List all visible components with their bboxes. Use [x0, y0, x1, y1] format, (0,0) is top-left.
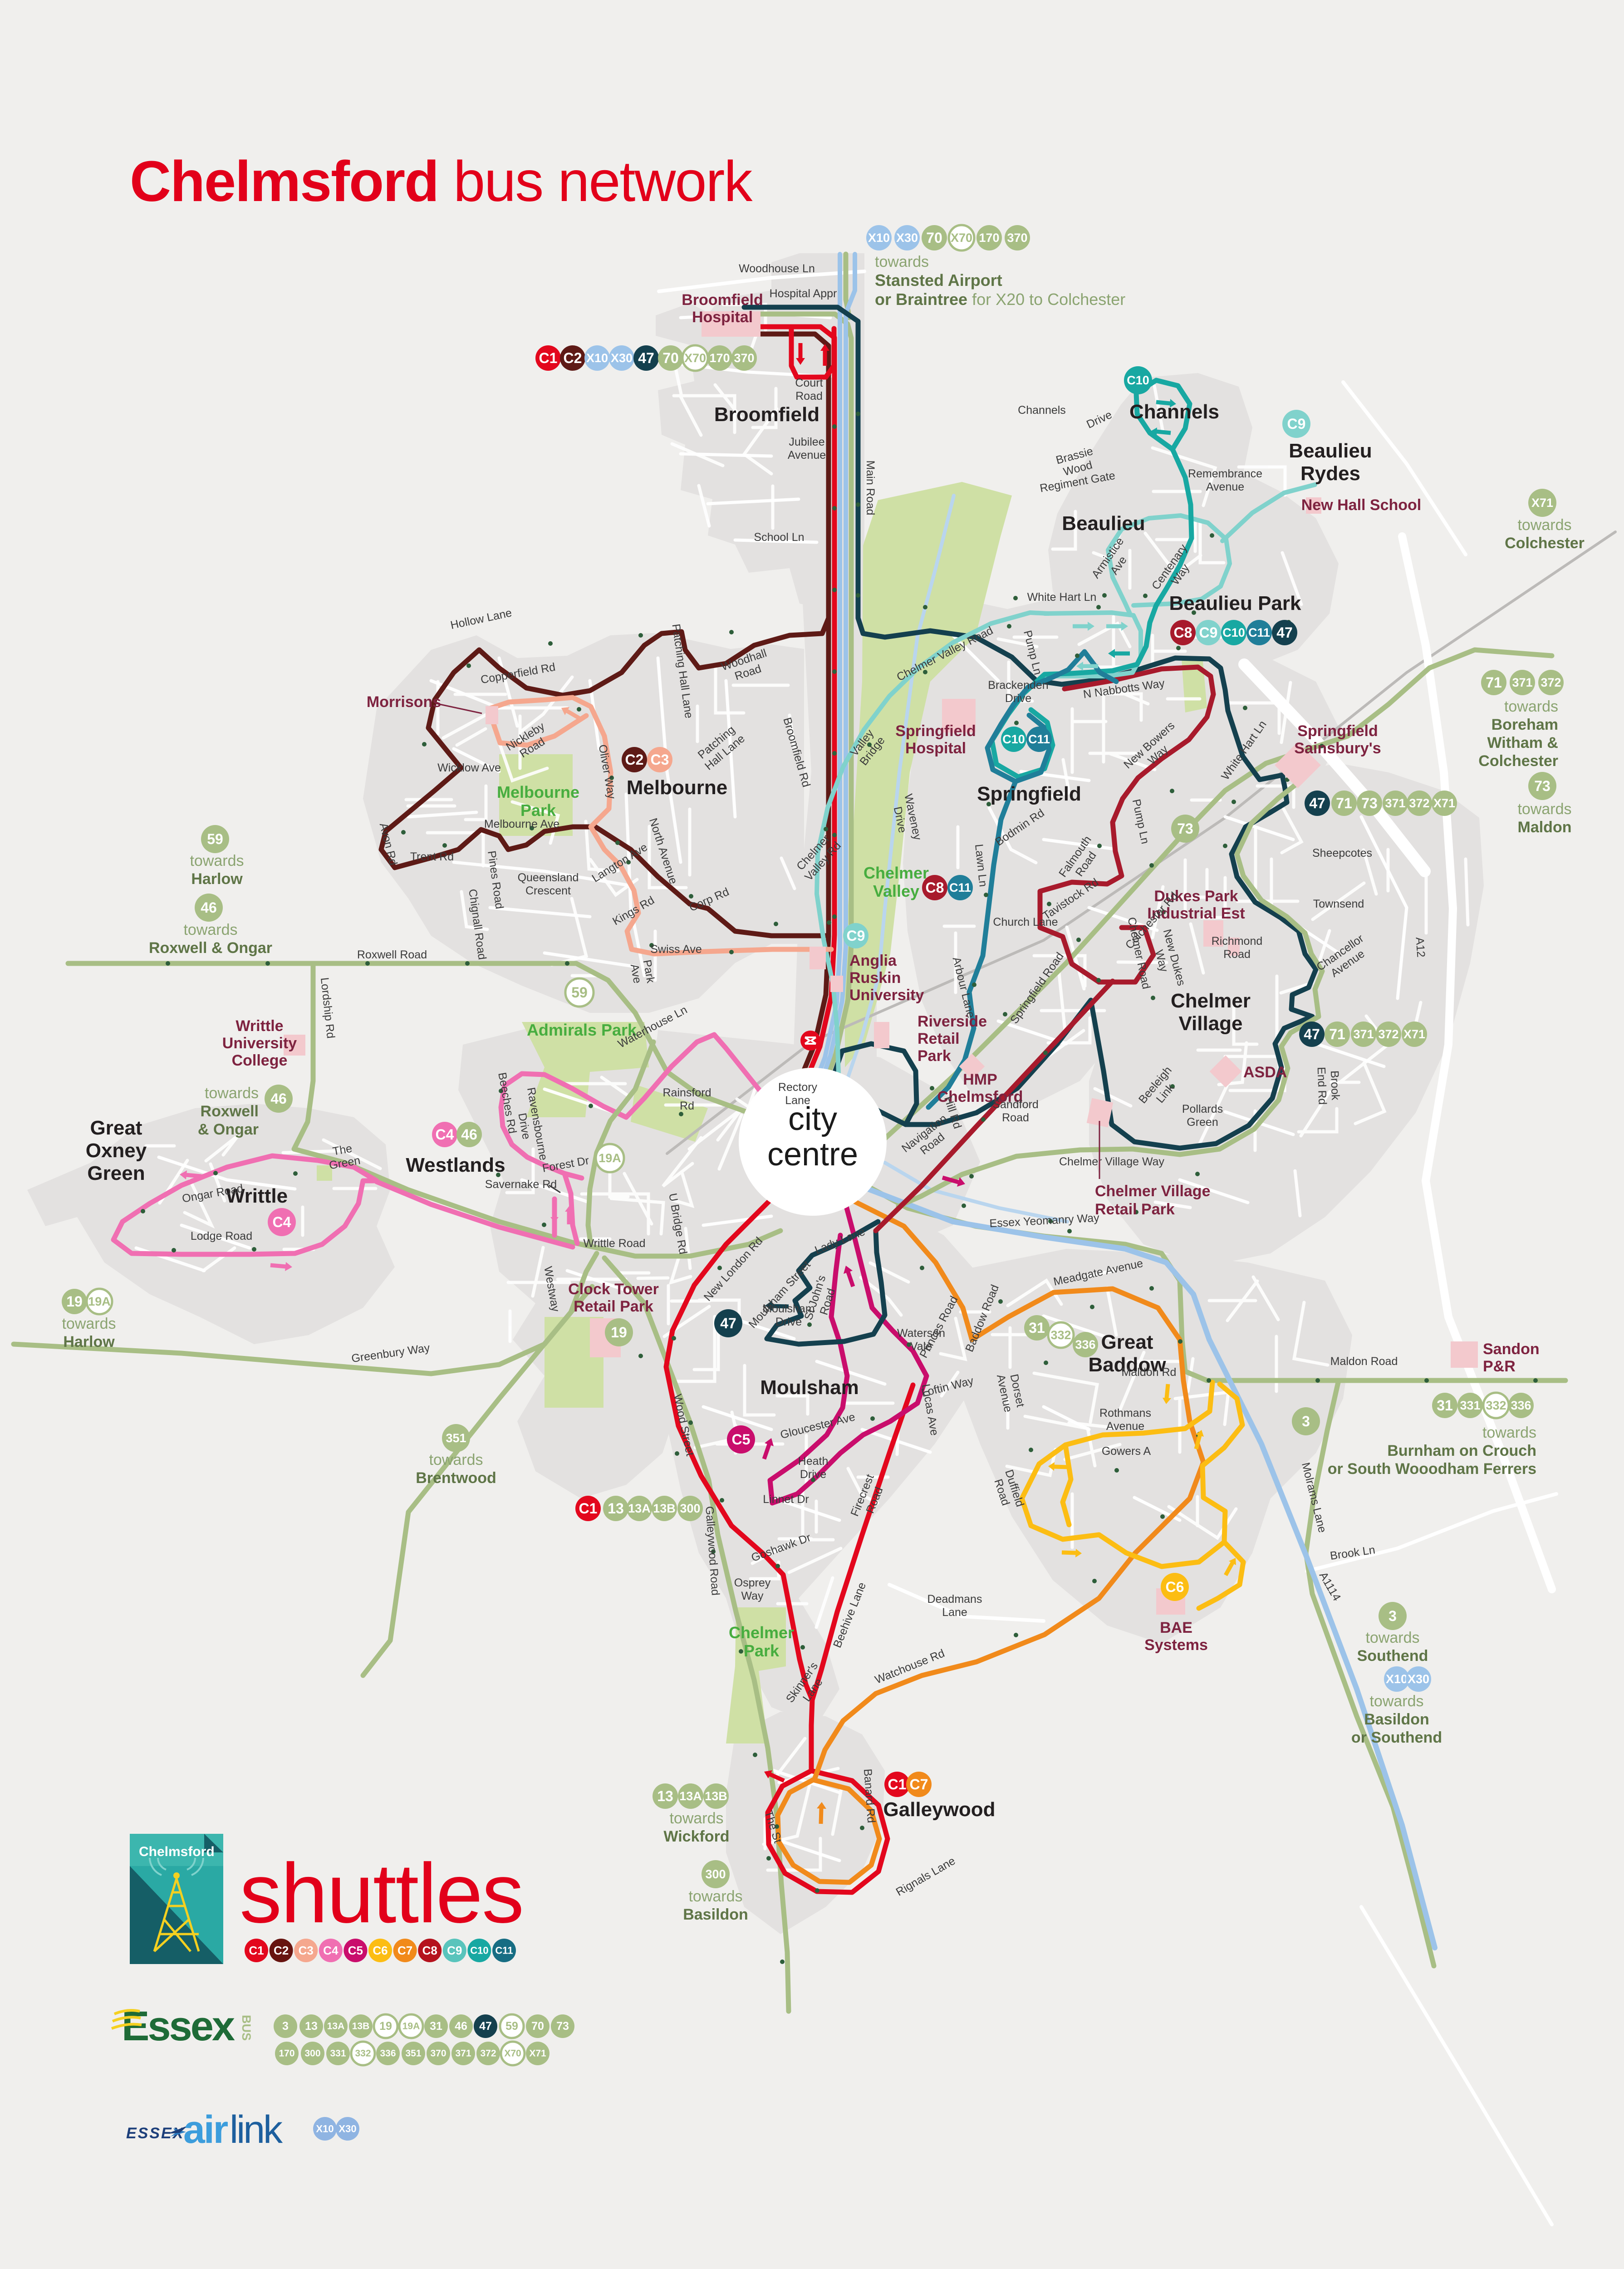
svg-text:Trent Rd: Trent Rd — [410, 850, 454, 863]
svg-text:13: 13 — [657, 1788, 673, 1804]
svg-text:BUS: BUS — [240, 2015, 253, 2041]
svg-text:Morrisons: Morrisons — [367, 693, 441, 711]
svg-text:towards: towards — [688, 1888, 742, 1905]
svg-text:BeaulieuRydes: BeaulieuRydes — [1289, 440, 1372, 485]
svg-text:300: 300 — [705, 1867, 726, 1881]
svg-text:Boreham: Boreham — [1492, 716, 1558, 733]
svg-text:C5: C5 — [732, 1431, 751, 1448]
svg-text:19A: 19A — [88, 1295, 111, 1308]
svg-text:13A: 13A — [628, 1502, 651, 1515]
svg-text:X71: X71 — [1433, 796, 1455, 810]
svg-text:X70: X70 — [684, 351, 706, 365]
svg-text:X30: X30 — [1408, 1672, 1429, 1686]
svg-text:Maldon Road: Maldon Road — [1330, 1355, 1398, 1368]
svg-text:332: 332 — [355, 2048, 371, 2059]
svg-text:C6: C6 — [373, 1944, 388, 1957]
svg-text:Roxwell & Ongar: Roxwell & Ongar — [149, 939, 272, 957]
svg-text:C11: C11 — [1248, 626, 1270, 639]
svg-text:C6: C6 — [1166, 1579, 1184, 1595]
svg-text:46: 46 — [270, 1090, 287, 1107]
svg-text:13B: 13B — [705, 1789, 727, 1803]
svg-text:13B: 13B — [653, 1502, 676, 1515]
svg-text:70: 70 — [531, 2020, 544, 2033]
svg-text:C2: C2 — [564, 350, 582, 366]
svg-text:C9: C9 — [1199, 624, 1218, 641]
svg-text:X10: X10 — [1386, 1672, 1408, 1686]
svg-text:336: 336 — [1075, 1338, 1095, 1351]
svg-text:73: 73 — [1177, 820, 1193, 837]
svg-text:C3: C3 — [651, 751, 669, 768]
svg-text:X70: X70 — [504, 2048, 521, 2059]
svg-text:Hospital Appr: Hospital Appr — [770, 287, 837, 300]
svg-text:CourtRoad: CourtRoad — [795, 377, 823, 403]
svg-text:31: 31 — [1437, 1397, 1453, 1414]
svg-text:71: 71 — [1336, 795, 1352, 811]
svg-text:or South Wooodham Ferrers: or South Wooodham Ferrers — [1328, 1460, 1536, 1478]
svg-text:X30: X30 — [611, 351, 633, 365]
svg-text:C11: C11 — [949, 881, 971, 894]
svg-text:Chelmsford: Chelmsford — [139, 1844, 215, 1859]
svg-text:170: 170 — [709, 351, 730, 365]
svg-text:X70: X70 — [951, 231, 972, 245]
svg-text:ChelmerValley: ChelmerValley — [864, 864, 929, 900]
svg-text:towards: towards — [1517, 801, 1571, 818]
svg-text:Melbourne Ave: Melbourne Ave — [484, 818, 559, 830]
svg-text:336: 336 — [380, 2048, 396, 2059]
svg-text:300: 300 — [304, 2048, 320, 2059]
svg-text:C1: C1 — [579, 1500, 598, 1517]
svg-text:C11: C11 — [495, 1945, 513, 1956]
svg-text:13A: 13A — [327, 2021, 345, 2032]
svg-text:towards: towards — [1365, 1629, 1419, 1646]
svg-text:Chelmer Village Way: Chelmer Village Way — [1059, 1155, 1165, 1168]
svg-text:331: 331 — [330, 2048, 346, 2059]
svg-text:Melbourne: Melbourne — [627, 776, 727, 799]
svg-text:C10: C10 — [1222, 626, 1245, 639]
svg-text:C9: C9 — [847, 928, 865, 944]
svg-text:School Ln: School Ln — [754, 531, 804, 544]
svg-text:towards: towards — [875, 253, 929, 270]
svg-text:towards: towards — [1517, 516, 1571, 534]
svg-text:C4: C4 — [273, 1214, 291, 1230]
svg-text:19: 19 — [66, 1293, 83, 1310]
svg-text:332: 332 — [1050, 1328, 1071, 1342]
svg-text:New Hall School: New Hall School — [1301, 496, 1422, 514]
svg-text:351: 351 — [446, 1431, 466, 1445]
svg-text:C10: C10 — [1127, 373, 1149, 387]
svg-text:X30: X30 — [896, 231, 918, 245]
svg-text:C10: C10 — [470, 1945, 488, 1956]
svg-text:X71: X71 — [1403, 1027, 1425, 1041]
svg-text:towards: towards — [190, 852, 244, 869]
svg-text:C3: C3 — [299, 1944, 314, 1957]
svg-text:towards: towards — [62, 1315, 116, 1332]
svg-text:Maldon: Maldon — [1518, 819, 1572, 836]
svg-text:BrookEnd Rd: BrookEnd Rd — [1315, 1066, 1342, 1105]
svg-text:C7: C7 — [397, 1944, 412, 1957]
svg-text:C7: C7 — [910, 1776, 928, 1793]
svg-text:Colchester: Colchester — [1478, 752, 1558, 770]
svg-text:Swiss Ave: Swiss Ave — [650, 943, 702, 956]
svg-text:Brentwood: Brentwood — [416, 1469, 496, 1487]
svg-text:47: 47 — [638, 350, 654, 366]
svg-text:JubileeAvenue: JubileeAvenue — [788, 436, 826, 462]
svg-text:70: 70 — [926, 230, 942, 246]
svg-text:332: 332 — [1486, 1399, 1506, 1412]
svg-text:19A: 19A — [599, 1151, 621, 1165]
svg-text:Springfield: Springfield — [977, 783, 1081, 805]
svg-text:Woodhouse Ln: Woodhouse Ln — [739, 262, 815, 275]
svg-text:Writtle Road: Writtle Road — [583, 1237, 645, 1250]
svg-text:QueenslandCrescent: QueenslandCrescent — [518, 871, 579, 897]
svg-text:Main Road: Main Road — [864, 461, 877, 516]
svg-text:Moulsham: Moulsham — [760, 1376, 859, 1399]
svg-text:371: 371 — [1512, 676, 1532, 689]
svg-text:or Southend: or Southend — [1351, 1729, 1442, 1746]
svg-text:RothmansAvenue: RothmansAvenue — [1099, 1407, 1151, 1433]
svg-text:C8: C8 — [1174, 624, 1192, 641]
svg-text:Wickford: Wickford — [663, 1828, 729, 1845]
svg-text:Savernake Rd: Savernake Rd — [485, 1178, 557, 1191]
svg-text:3: 3 — [1302, 1413, 1310, 1429]
svg-text:Church Lane: Church Lane — [993, 916, 1058, 928]
svg-text:C10: C10 — [1002, 732, 1025, 746]
svg-text:300: 300 — [680, 1502, 700, 1515]
svg-text:C5: C5 — [348, 1944, 363, 1957]
svg-text:371: 371 — [455, 2048, 471, 2059]
svg-text:Harlow: Harlow — [63, 1333, 115, 1351]
svg-text:Townsend: Townsend — [1313, 898, 1364, 910]
svg-text:Channels: Channels — [1129, 401, 1219, 423]
svg-text:372: 372 — [1541, 676, 1561, 689]
svg-text:170: 170 — [279, 2048, 294, 2059]
svg-text:C8: C8 — [926, 879, 944, 896]
svg-text:towards: towards — [205, 1085, 259, 1102]
svg-text:C2: C2 — [274, 1944, 289, 1957]
svg-text:& Ongar: & Ongar — [198, 1121, 259, 1138]
svg-text:370: 370 — [734, 351, 754, 365]
svg-text:Southend: Southend — [1357, 1647, 1428, 1665]
svg-text:73: 73 — [1534, 778, 1550, 794]
svg-text:towards: towards — [183, 921, 237, 938]
svg-text:towards: towards — [1369, 1693, 1423, 1710]
svg-text:shuttles: shuttles — [240, 1847, 523, 1940]
svg-text:Witham &: Witham & — [1487, 734, 1558, 751]
svg-text:19A: 19A — [402, 2021, 420, 2032]
svg-text:air: air — [183, 2108, 228, 2151]
svg-text:Gowers A: Gowers A — [1102, 1445, 1151, 1458]
svg-text:A12: A12 — [1413, 937, 1427, 958]
svg-text:13B: 13B — [352, 2021, 370, 2032]
svg-text:46: 46 — [201, 899, 217, 916]
svg-text:Galleywood: Galleywood — [883, 1798, 996, 1821]
svg-text:372: 372 — [1409, 796, 1429, 810]
svg-text:Broomfield: Broomfield — [714, 403, 819, 426]
svg-text:Basildon: Basildon — [1364, 1711, 1429, 1728]
svg-text:351: 351 — [405, 2048, 421, 2059]
svg-text:Linnet Dr: Linnet Dr — [763, 1493, 809, 1506]
svg-text:71: 71 — [1486, 674, 1502, 691]
svg-text:C4: C4 — [436, 1126, 454, 1143]
svg-text:73: 73 — [1361, 795, 1378, 811]
svg-text:Roxwell: Roxwell — [201, 1103, 259, 1120]
svg-text:47: 47 — [1304, 1026, 1320, 1042]
svg-text:13A: 13A — [679, 1789, 702, 1803]
svg-text:PollardsGreen: PollardsGreen — [1182, 1103, 1223, 1129]
svg-text:C9: C9 — [447, 1944, 462, 1957]
svg-text:31: 31 — [430, 2020, 442, 2033]
svg-text:C1: C1 — [888, 1776, 907, 1793]
svg-text:71: 71 — [1329, 1026, 1345, 1042]
svg-text:C11: C11 — [1028, 732, 1050, 746]
svg-text:ChelmerVillage: ChelmerVillage — [1171, 990, 1251, 1035]
svg-text:59: 59 — [505, 2020, 518, 2033]
svg-text:371: 371 — [1353, 1027, 1374, 1041]
svg-text:ASDA: ASDA — [1243, 1064, 1287, 1081]
svg-text:170: 170 — [979, 231, 999, 245]
svg-text:Stansted Airport: Stansted Airport — [875, 271, 1002, 290]
svg-text:Colchester: Colchester — [1505, 535, 1585, 552]
svg-text:Roxwell Road: Roxwell Road — [357, 948, 427, 961]
svg-text:372: 372 — [480, 2048, 496, 2059]
svg-text:Channels: Channels — [1018, 404, 1066, 417]
svg-text:C2: C2 — [625, 751, 644, 768]
svg-text:Maldon Rd: Maldon Rd — [1122, 1366, 1177, 1379]
svg-text:Lodge Road: Lodge Road — [191, 1230, 252, 1243]
svg-text:SpringfieldSainsbury's: SpringfieldSainsbury's — [1294, 722, 1381, 757]
svg-text:3: 3 — [1388, 1608, 1397, 1624]
svg-text:Basildon: Basildon — [683, 1906, 748, 1923]
svg-text:13: 13 — [305, 2020, 318, 2033]
svg-text:47: 47 — [1309, 795, 1325, 811]
svg-text:59: 59 — [207, 831, 223, 847]
svg-text:Sheepcotes: Sheepcotes — [1312, 847, 1372, 859]
svg-text:SpringfieldHospital: SpringfieldHospital — [895, 722, 976, 757]
svg-text:X71: X71 — [1531, 496, 1553, 510]
svg-text:47: 47 — [479, 2020, 492, 2033]
svg-text:336: 336 — [1511, 1399, 1531, 1412]
svg-text:Westlands: Westlands — [406, 1154, 505, 1176]
svg-text:Clock TowerRetail Park: Clock TowerRetail Park — [568, 1281, 659, 1315]
svg-text:or Braintree for X20 to Colche: or Braintree for X20 to Colchester — [875, 290, 1125, 309]
svg-text:47: 47 — [720, 1315, 736, 1331]
svg-text:59: 59 — [571, 984, 588, 1001]
svg-text:3: 3 — [282, 2020, 289, 2033]
svg-text:Beaulieu Park: Beaulieu Park — [1169, 592, 1301, 614]
svg-text:X10: X10 — [868, 231, 890, 245]
svg-text:19: 19 — [379, 2020, 392, 2033]
svg-text:Chelmsford bus network: Chelmsford bus network — [130, 149, 753, 213]
svg-text:C1: C1 — [539, 350, 558, 366]
svg-text:371: 371 — [1385, 796, 1405, 810]
svg-text:70: 70 — [662, 350, 679, 366]
svg-text:370: 370 — [1007, 231, 1027, 245]
svg-text:towards: towards — [429, 1451, 483, 1468]
svg-text:372: 372 — [1378, 1027, 1398, 1041]
svg-text:X30: X30 — [339, 2123, 356, 2135]
svg-text:HeathDrive: HeathDrive — [798, 1455, 829, 1481]
svg-text:13: 13 — [608, 1500, 624, 1517]
svg-text:towards: towards — [1504, 698, 1558, 715]
svg-text:C1: C1 — [249, 1944, 264, 1957]
svg-text:C4: C4 — [323, 1944, 339, 1957]
svg-text:Harlow: Harlow — [191, 870, 243, 888]
svg-text:X10: X10 — [586, 351, 608, 365]
svg-text:370: 370 — [430, 2048, 446, 2059]
svg-text:BroomfieldHospital: BroomfieldHospital — [682, 291, 763, 326]
svg-text:Burnham on Crouch: Burnham on Crouch — [1387, 1442, 1536, 1459]
svg-text:White Hart Ln: White Hart Ln — [1027, 591, 1097, 604]
svg-text:19: 19 — [611, 1324, 627, 1341]
svg-text:C8: C8 — [422, 1944, 437, 1957]
svg-text:X71: X71 — [529, 2048, 546, 2059]
svg-text:46: 46 — [455, 2020, 467, 2033]
svg-text:towards: towards — [1482, 1424, 1536, 1441]
svg-text:Beaulieu: Beaulieu — [1062, 512, 1145, 535]
svg-text:31: 31 — [1029, 1320, 1045, 1336]
svg-text:link: link — [230, 2108, 283, 2151]
svg-text:331: 331 — [1460, 1399, 1480, 1412]
svg-text:GreatOxneyGreen: GreatOxneyGreen — [86, 1117, 147, 1184]
svg-text:73: 73 — [556, 2020, 569, 2033]
svg-text:46: 46 — [461, 1126, 477, 1143]
svg-text:X10: X10 — [316, 2123, 334, 2135]
svg-text:47: 47 — [1276, 624, 1293, 641]
svg-text:Wicklow Ave: Wicklow Ave — [437, 761, 501, 774]
svg-text:C9: C9 — [1287, 416, 1306, 432]
svg-text:towards: towards — [669, 1810, 723, 1827]
